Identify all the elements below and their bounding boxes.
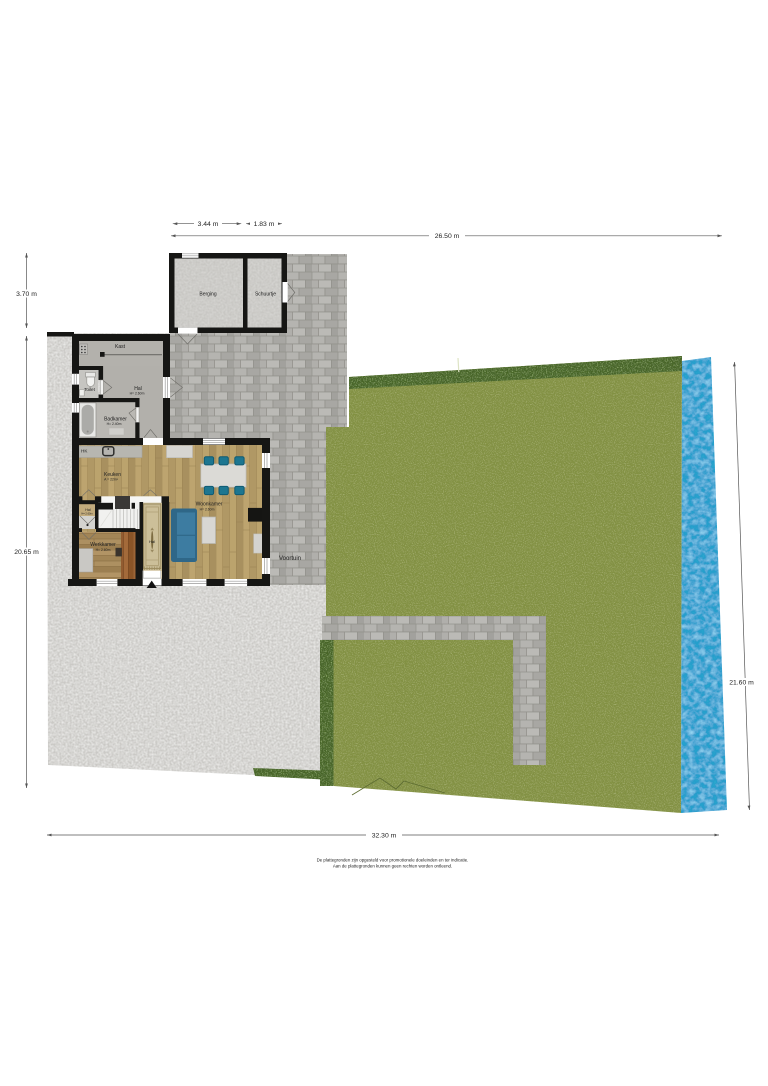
svg-text:32.30 m: 32.30 m bbox=[372, 833, 397, 840]
svg-text:1.83 m: 1.83 m bbox=[254, 221, 275, 228]
svg-text:21.60 m: 21.60 m bbox=[729, 680, 754, 687]
svg-text:Berging: Berging bbox=[199, 292, 216, 298]
svg-text:H= 2.40m: H= 2.40m bbox=[107, 422, 122, 426]
svg-text:H= 2.60m: H= 2.60m bbox=[81, 512, 92, 516]
svg-text:H= 2.60m: H= 2.60m bbox=[200, 508, 215, 512]
svg-text:Aan de plattegronden kunnen ge: Aan de plattegronden kunnen geen rechten… bbox=[333, 864, 452, 869]
svg-text:H= 2.60m: H= 2.60m bbox=[96, 548, 111, 552]
svg-text:H= 2.60m: H= 2.60m bbox=[130, 391, 145, 395]
svg-text:26.50 m: 26.50 m bbox=[435, 233, 460, 240]
svg-text:3.44 m: 3.44 m bbox=[198, 221, 219, 228]
svg-text:20.65 m: 20.65 m bbox=[14, 549, 39, 556]
svg-text:Toilet: Toilet bbox=[84, 387, 95, 392]
svg-text:Hal: Hal bbox=[85, 508, 91, 512]
svg-text:Hal: Hal bbox=[149, 539, 155, 544]
svg-text:De plattegronden zijn opgestel: De plattegronden zijn opgesteld voor pro… bbox=[317, 858, 469, 863]
svg-text:Voortuin: Voortuin bbox=[279, 556, 301, 562]
svg-text:3.70 m: 3.70 m bbox=[16, 291, 37, 298]
svg-text:Kast: Kast bbox=[115, 344, 126, 350]
svg-text:A = 22m²: A = 22m² bbox=[104, 478, 119, 482]
svg-text:HK: HK bbox=[81, 449, 88, 454]
svg-text:Schuurtje: Schuurtje bbox=[255, 292, 276, 298]
